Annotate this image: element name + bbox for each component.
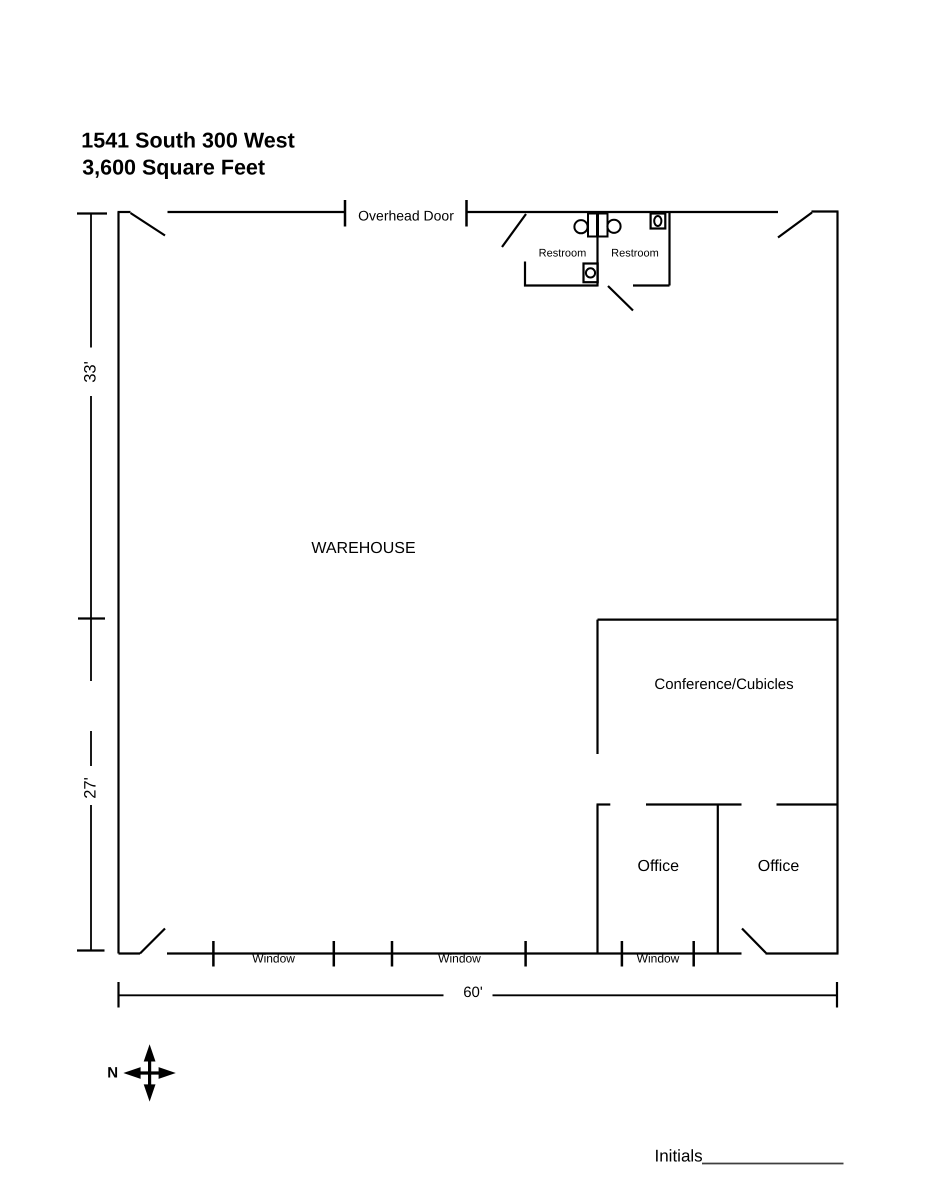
svg-text:60': 60' — [463, 984, 483, 1001]
svg-text:Conference/Cubicles: Conference/Cubicles — [654, 676, 793, 693]
svg-text:33': 33' — [82, 361, 100, 383]
svg-text:27': 27' — [82, 777, 100, 799]
svg-text:Window: Window — [438, 952, 481, 966]
svg-text:Overhead Door: Overhead Door — [358, 208, 454, 224]
svg-text:Window: Window — [637, 952, 680, 966]
svg-text:1541 South 300 West: 1541 South 300 West — [81, 129, 294, 153]
svg-text:Office: Office — [638, 858, 680, 875]
svg-text:Office: Office — [758, 858, 800, 875]
svg-text:Window: Window — [252, 952, 295, 966]
svg-text:N: N — [107, 1065, 118, 1082]
svg-text:Restroom: Restroom — [539, 247, 587, 259]
svg-text:3,600 Square Feet: 3,600 Square Feet — [82, 155, 265, 179]
svg-text:Restroom: Restroom — [611, 247, 659, 259]
svg-text:WAREHOUSE: WAREHOUSE — [311, 540, 415, 557]
svg-text:Initials: Initials — [655, 1147, 703, 1166]
